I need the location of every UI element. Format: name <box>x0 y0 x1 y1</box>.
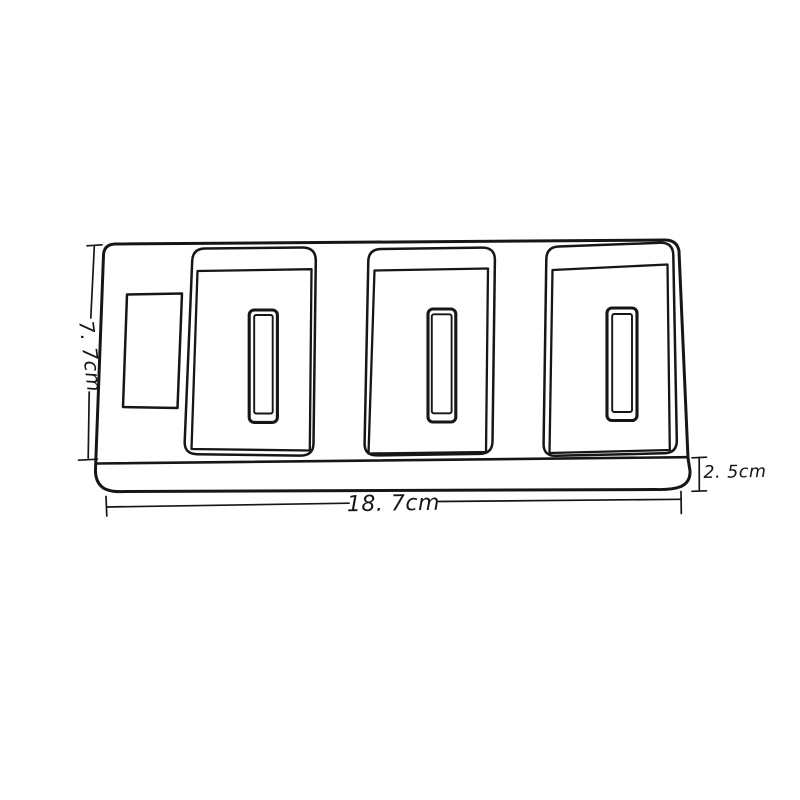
tray-base-separation-line <box>97 457 687 463</box>
diagram-canvas: 7. 7cm 18. 7cm 2. 5cm <box>0 0 800 800</box>
height-dim-tick-top <box>87 245 102 246</box>
module-2-outer-frame <box>365 248 495 456</box>
width-dim-line-left <box>106 503 349 507</box>
width-dimension-label: 18. 7cm <box>347 491 440 518</box>
height-dim-line-upper <box>91 247 95 319</box>
thickness-dim-tick-bottom <box>692 491 707 492</box>
width-dim-line-right <box>439 499 682 501</box>
module-1 <box>185 247 316 455</box>
tray-line-art: 7. 7cm 18. 7cm 2. 5cm <box>74 240 766 517</box>
module-2 <box>365 248 495 456</box>
thickness-dimension-label: 2. 5cm <box>703 462 766 483</box>
height-dim-line-lower <box>88 392 89 458</box>
module-2-slot-inner <box>432 314 452 413</box>
tray-dimension-diagram: 7. 7cm 18. 7cm 2. 5cm <box>0 0 800 800</box>
module-3 <box>544 243 677 456</box>
module-3-inner-plate <box>550 265 670 454</box>
thickness-dimension: 2. 5cm <box>692 457 767 491</box>
height-dim-tick-bottom <box>79 459 98 460</box>
module-1-slot-inner <box>254 315 273 414</box>
width-dimension: 18. 7cm <box>106 491 681 518</box>
left-empty-slot <box>123 294 182 409</box>
module-3-slot-inner <box>612 314 632 412</box>
module-3-outer-frame <box>544 243 677 456</box>
